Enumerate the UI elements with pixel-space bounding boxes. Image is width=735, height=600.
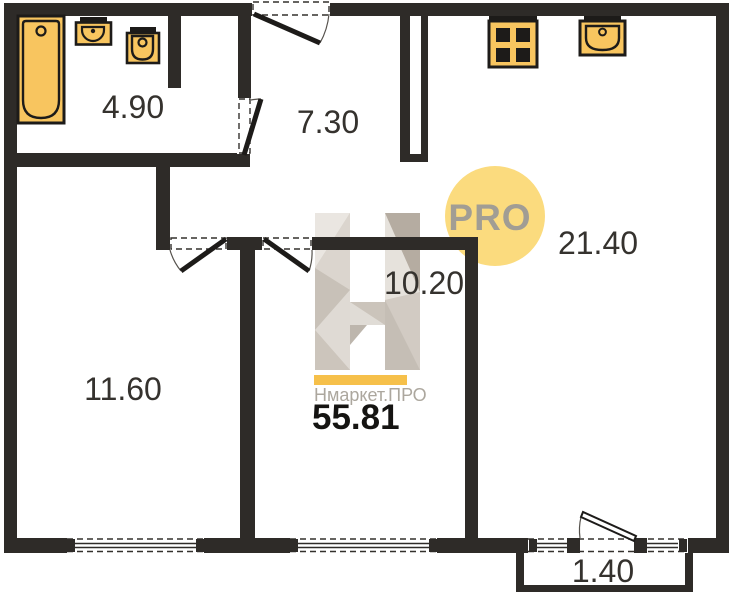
accent-bar	[314, 375, 407, 385]
total-area-label: 55.81	[312, 398, 400, 437]
label-room-b-area: 11.60	[84, 371, 162, 407]
wall-hall-connector	[156, 167, 170, 250]
label-balcony-area: 1.40	[572, 553, 634, 589]
stove-icon	[489, 16, 537, 67]
wall-right	[716, 3, 729, 553]
wall-bottom-d	[688, 538, 716, 553]
wall-top-right	[330, 3, 729, 16]
wall-kitchen-divider	[465, 250, 478, 538]
wall-corridor-b	[312, 237, 478, 250]
bathroom-sink-icon	[76, 17, 111, 45]
wall-left	[4, 3, 17, 553]
wall-bathroom-bottom	[4, 153, 250, 167]
label-bathroom-area: 4.90	[102, 89, 164, 125]
floor-plan-canvas: PRO Нмаркет.ПРО 55.81	[0, 0, 735, 600]
toilet-icon	[127, 27, 159, 63]
kitchen-sink-icon	[580, 16, 625, 55]
label-kitchen-living-area: 21.40	[558, 225, 638, 261]
floor-plan: PRO Нмаркет.ПРО 55.81	[0, 0, 735, 600]
bathtub-icon	[18, 16, 64, 123]
pro-badge: PRO	[445, 166, 545, 266]
wall-bottom-b	[204, 538, 290, 553]
wall-bottom-a	[17, 538, 67, 553]
pro-badge-label: PRO	[448, 197, 531, 238]
wall-corridor-a	[227, 237, 262, 250]
balcony-wall-right	[685, 553, 693, 592]
vent-shaft-icon	[400, 16, 428, 162]
wall-bathroom-right	[238, 16, 251, 98]
wall-wc-partition	[168, 16, 181, 88]
wall-room-divider	[240, 250, 255, 538]
label-room-a-area: 10.20	[384, 265, 464, 301]
label-hallway-area: 7.30	[297, 104, 359, 140]
wall-bottom-c	[437, 538, 528, 553]
wall-top-left	[4, 3, 252, 16]
